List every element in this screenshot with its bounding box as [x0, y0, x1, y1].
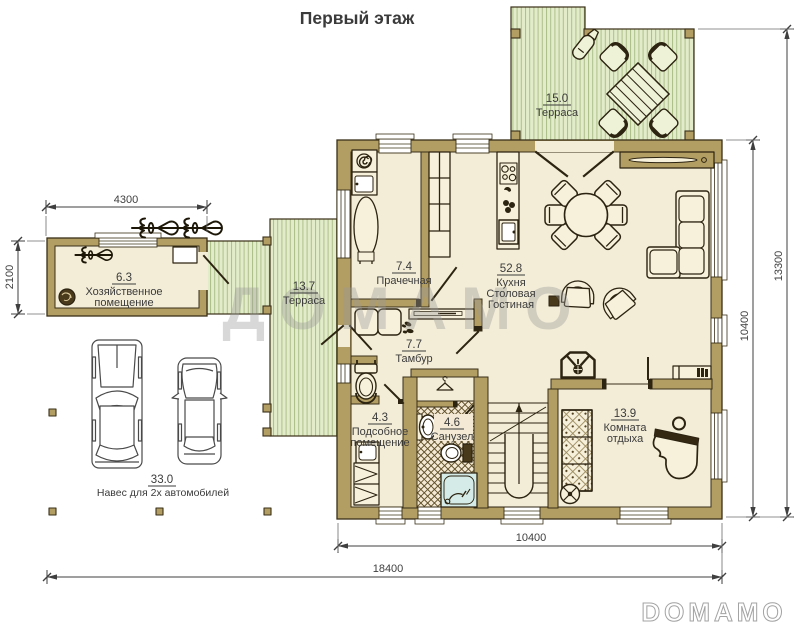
svg-text:Тамбур: Тамбур — [395, 353, 432, 365]
svg-text:Терраса: Терраса — [536, 107, 579, 119]
svg-text:13300: 13300 — [773, 251, 785, 282]
svg-text:13.9: 13.9 — [614, 408, 636, 420]
svg-text:отдыха: отдыха — [607, 433, 644, 445]
svg-text:7.4: 7.4 — [396, 261, 413, 273]
svg-text:Санузел: Санузел — [431, 431, 474, 443]
svg-text:4300: 4300 — [114, 194, 138, 206]
svg-text:Терраса: Терраса — [283, 295, 326, 307]
svg-text:18400: 18400 — [373, 563, 404, 575]
svg-text:13.7: 13.7 — [293, 281, 315, 293]
svg-text:6.3: 6.3 — [116, 272, 132, 284]
svg-text:10400: 10400 — [739, 311, 751, 342]
svg-text:помещение: помещение — [94, 297, 153, 309]
svg-text:Первый этаж: Первый этаж — [300, 8, 415, 28]
svg-text:Гостиная: Гостиная — [488, 299, 534, 311]
svg-text:33.0: 33.0 — [151, 474, 173, 486]
svg-text:Прачечная: Прачечная — [376, 275, 431, 287]
svg-text:DOMAMO: DOMAMO — [641, 597, 786, 627]
svg-text:4.6: 4.6 — [444, 417, 460, 429]
svg-text:помещение: помещение — [350, 437, 409, 449]
svg-text:4.3: 4.3 — [372, 412, 388, 424]
svg-text:15.0: 15.0 — [546, 93, 568, 105]
svg-text:10400: 10400 — [516, 532, 547, 544]
svg-text:52.8: 52.8 — [500, 263, 522, 275]
svg-text:7.7: 7.7 — [406, 339, 422, 351]
svg-text:2100: 2100 — [4, 265, 16, 289]
svg-text:Навес для 2х автомобилей: Навес для 2х автомобилей — [97, 487, 229, 499]
